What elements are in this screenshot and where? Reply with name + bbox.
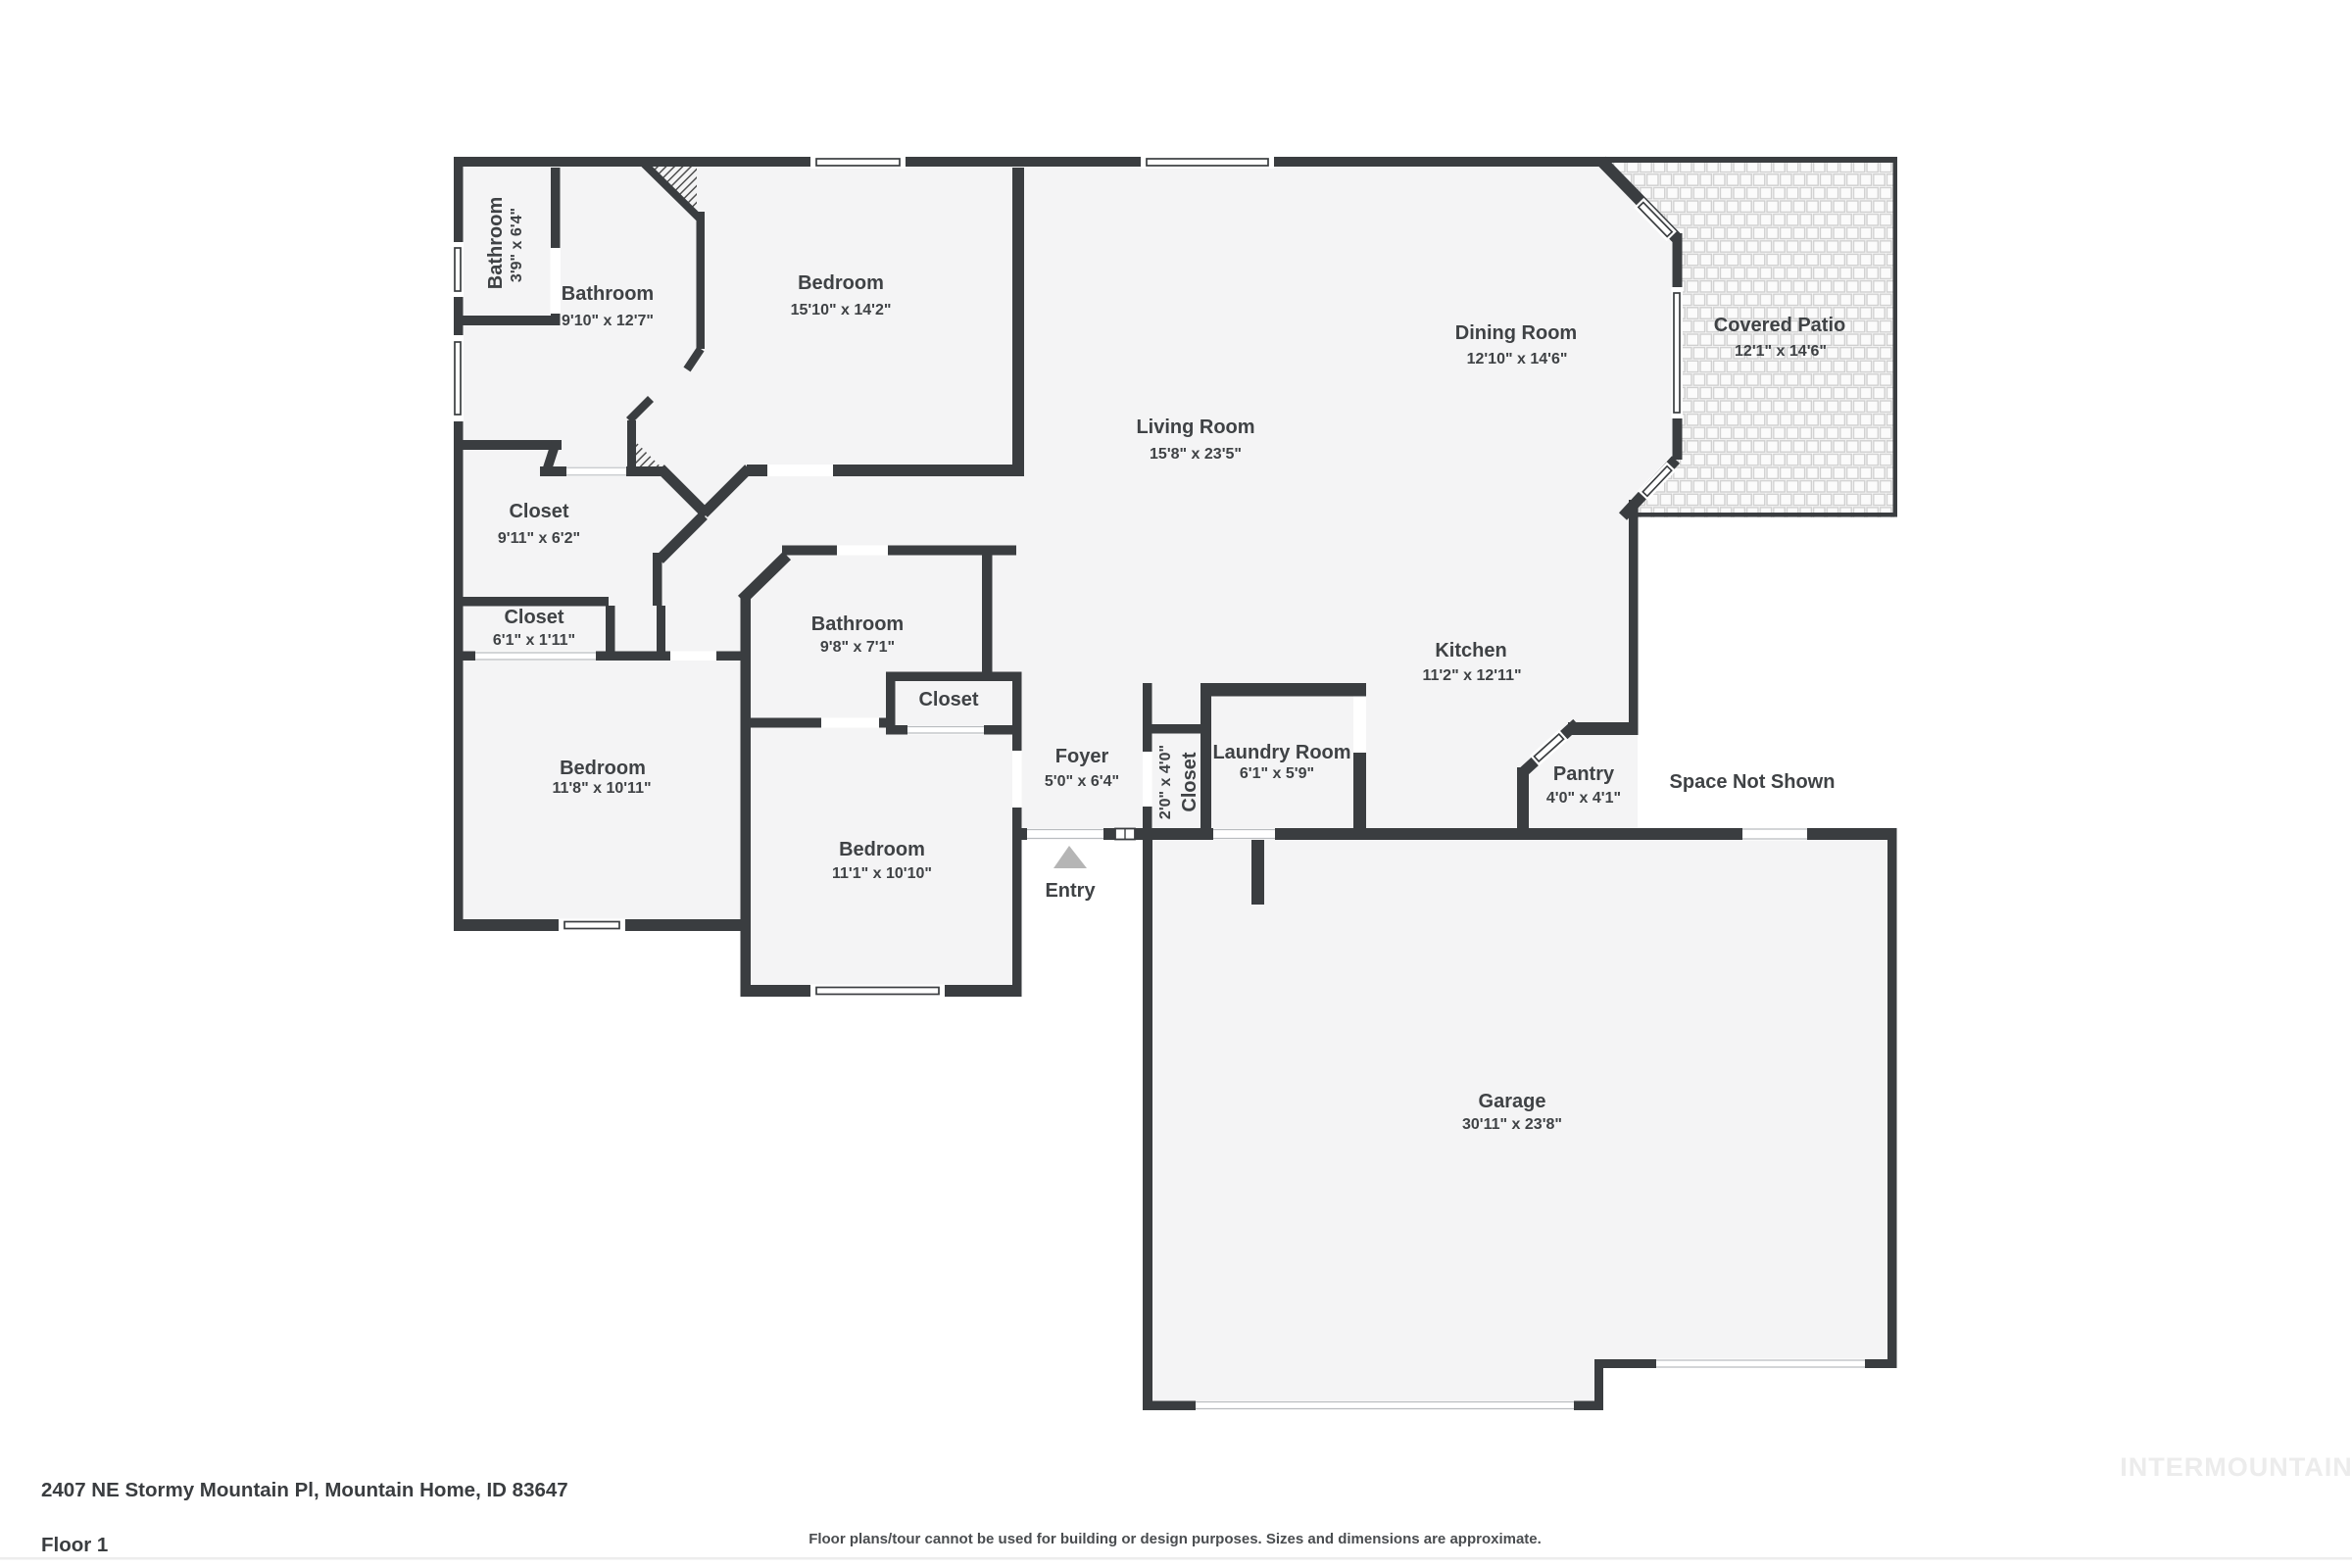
svg-text:12'1" x 14'6": 12'1" x 14'6" xyxy=(1735,343,1827,360)
svg-text:6'1" x 5'9": 6'1" x 5'9" xyxy=(1240,765,1314,782)
svg-text:15'10" x 14'2": 15'10" x 14'2" xyxy=(791,302,892,318)
svg-text:Entry: Entry xyxy=(1045,880,1096,902)
svg-text:Kitchen: Kitchen xyxy=(1435,640,1506,661)
svg-text:Living Room: Living Room xyxy=(1136,416,1254,438)
svg-text:Bedroom: Bedroom xyxy=(798,272,884,294)
svg-text:Covered Patio: Covered Patio xyxy=(1714,315,1845,336)
svg-text:12'10" x 14'6": 12'10" x 14'6" xyxy=(1467,351,1568,367)
svg-text:15'8" x 23'5": 15'8" x 23'5" xyxy=(1150,446,1242,463)
svg-text:INTERMOUNTAIN: INTERMOUNTAIN xyxy=(2120,1452,2352,1482)
svg-text:11'1" x 10'10": 11'1" x 10'10" xyxy=(832,865,932,882)
svg-text:2'0" x 4'0": 2'0" x 4'0" xyxy=(1157,745,1174,819)
svg-text:9'11" x 6'2": 9'11" x 6'2" xyxy=(498,530,580,547)
svg-text:Closet: Closet xyxy=(504,607,563,628)
svg-text:2407 NE Stormy Mountain Pl, Mo: 2407 NE Stormy Mountain Pl, Mountain Hom… xyxy=(41,1479,568,1501)
svg-text:Pantry: Pantry xyxy=(1553,763,1615,785)
svg-text:Closet: Closet xyxy=(918,689,978,710)
svg-text:Floor plans/tour cannot be use: Floor plans/tour cannot be used for buil… xyxy=(808,1531,1542,1547)
svg-text:Laundry Room: Laundry Room xyxy=(1212,742,1350,763)
svg-text:Closet: Closet xyxy=(509,501,568,522)
svg-text:Garage: Garage xyxy=(1479,1091,1546,1112)
svg-text:Space Not Shown: Space Not Shown xyxy=(1670,771,1836,793)
svg-text:30'11" x 23'8": 30'11" x 23'8" xyxy=(1462,1116,1562,1133)
svg-text:9'8" x 7'1": 9'8" x 7'1" xyxy=(820,639,895,656)
svg-text:3'9" x 6'4": 3'9" x 6'4" xyxy=(509,208,525,282)
svg-text:Bedroom: Bedroom xyxy=(560,758,646,779)
svg-text:Bathroom: Bathroom xyxy=(811,613,904,635)
svg-text:Bathroom: Bathroom xyxy=(485,197,507,289)
svg-text:5'0" x 6'4": 5'0" x 6'4" xyxy=(1045,773,1119,790)
svg-text:Bathroom: Bathroom xyxy=(562,283,654,305)
svg-text:9'10" x 12'7": 9'10" x 12'7" xyxy=(562,313,654,329)
svg-text:11'8" x 10'11": 11'8" x 10'11" xyxy=(552,780,651,797)
svg-text:Bedroom: Bedroom xyxy=(839,839,925,860)
svg-text:11'2" x 12'11": 11'2" x 12'11" xyxy=(1422,667,1521,684)
svg-text:Dining Room: Dining Room xyxy=(1455,322,1577,344)
svg-text:Floor 1: Floor 1 xyxy=(41,1534,108,1556)
svg-text:Closet: Closet xyxy=(1179,752,1200,811)
svg-text:4'0" x 4'1": 4'0" x 4'1" xyxy=(1546,790,1621,807)
svg-text:6'1" x 1'11": 6'1" x 1'11" xyxy=(493,632,575,649)
svg-text:Foyer: Foyer xyxy=(1055,746,1109,767)
